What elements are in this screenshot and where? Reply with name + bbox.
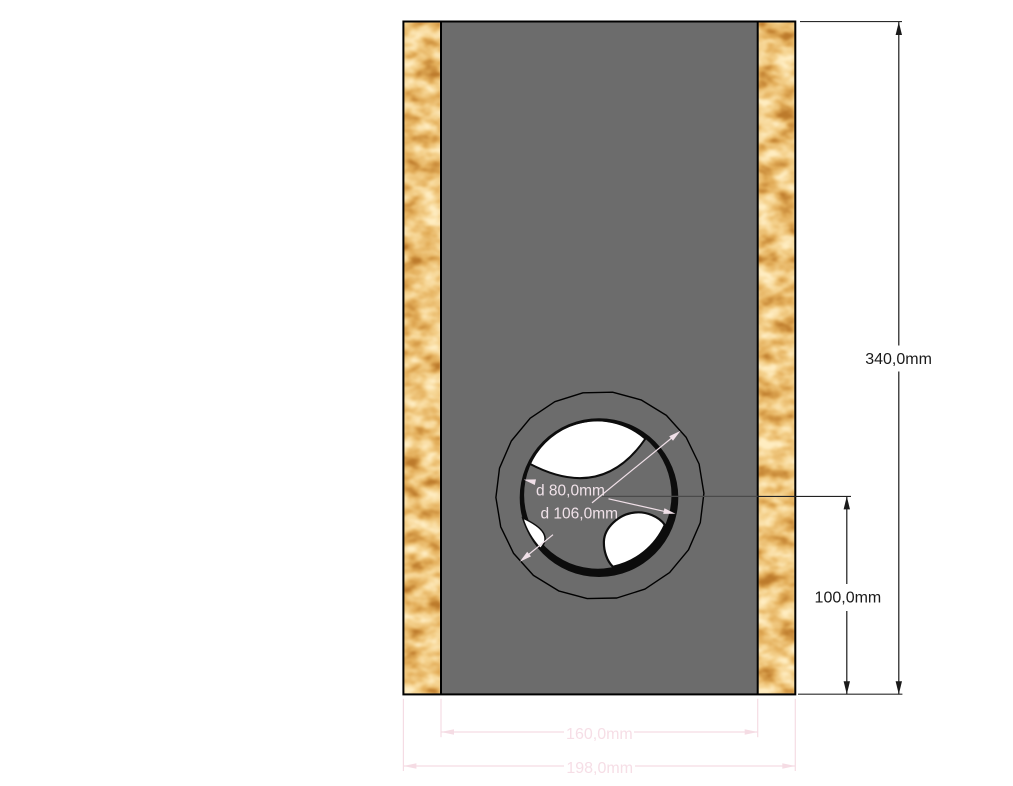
svg-text:160,0mm: 160,0mm [566,726,633,743]
svg-text:d 80,0mm: d 80,0mm [536,482,605,499]
svg-text:100,0mm: 100,0mm [815,590,882,607]
svg-text:340,0mm: 340,0mm [865,351,932,368]
svg-text:198,0mm: 198,0mm [566,760,633,777]
svg-text:d 106,0mm: d 106,0mm [541,506,619,523]
